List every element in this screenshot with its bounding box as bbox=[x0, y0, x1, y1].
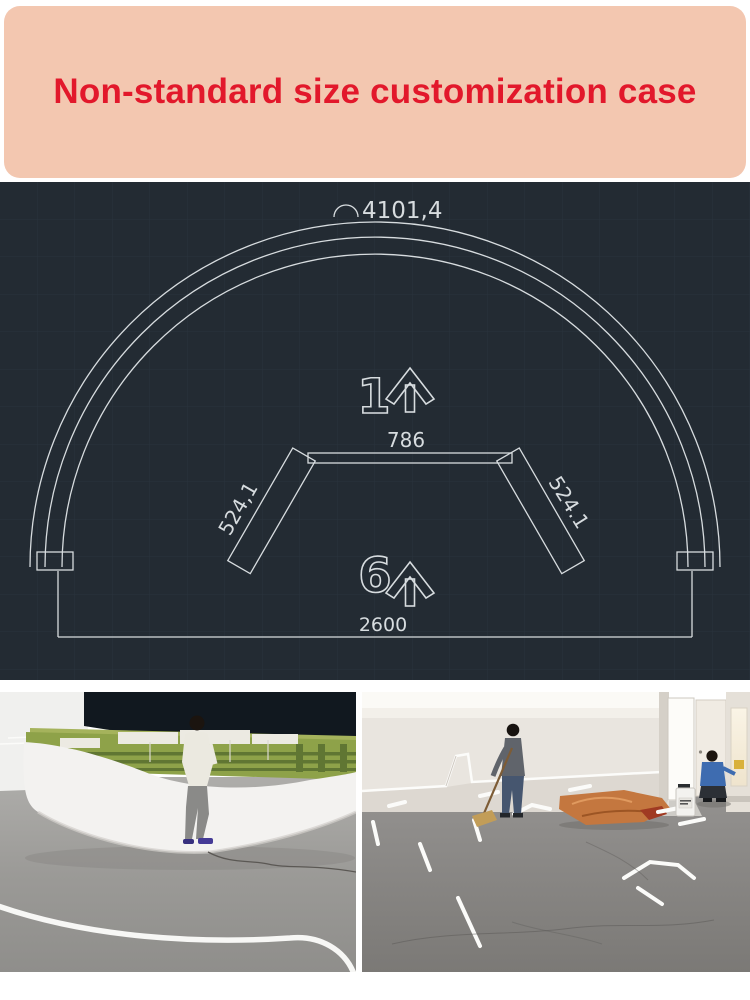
cad-grid bbox=[0, 182, 750, 680]
page-title: Non-standard size customization case bbox=[53, 72, 696, 112]
door-handle bbox=[699, 750, 702, 753]
woman-sweater bbox=[501, 738, 525, 776]
boy-shoe-left bbox=[183, 839, 194, 844]
title-banner: Non-standard size customization case bbox=[4, 6, 746, 178]
installation-scene bbox=[362, 692, 750, 972]
page: { "banner": { "title": "Non-standard siz… bbox=[0, 0, 750, 1000]
cad-drawing-panel: 4101,4 1 786 524,1 524.1 6 2600 bbox=[0, 182, 750, 680]
qty-bottom-count: 6 bbox=[358, 548, 391, 604]
woman-shoe-right bbox=[513, 813, 523, 818]
top-width-dimension: 786 bbox=[387, 428, 425, 452]
photo-showroom-model bbox=[0, 692, 356, 972]
crouching-boy-shoe-left bbox=[703, 798, 712, 802]
right-wall-base bbox=[726, 796, 750, 802]
crouching-boy-head bbox=[706, 750, 717, 761]
boy-shirt bbox=[182, 732, 213, 786]
boy-shoe-right bbox=[198, 838, 213, 844]
cad-canvas: 4101,4 1 786 524,1 524.1 6 2600 bbox=[0, 182, 750, 680]
crouching-boy-shoe-right bbox=[716, 798, 726, 802]
woman-shoe-left bbox=[500, 813, 510, 818]
paint-bucket bbox=[676, 784, 695, 816]
photo-installation-room bbox=[362, 692, 750, 972]
qty-top-count: 1 bbox=[357, 369, 390, 425]
woman-head bbox=[507, 724, 520, 737]
room-floor bbox=[362, 790, 750, 972]
cove-glow bbox=[362, 708, 667, 718]
shelf-object bbox=[734, 760, 744, 769]
crouching-boy-shirt bbox=[700, 762, 726, 786]
arc-length-dimension: 4101,4 bbox=[362, 198, 442, 224]
showroom-scene bbox=[0, 692, 356, 972]
crouching-boy-legs bbox=[699, 786, 727, 798]
ceiling-cove-light bbox=[362, 692, 667, 708]
boy-head bbox=[190, 716, 205, 731]
base-width-dimension: 2600 bbox=[359, 614, 407, 636]
